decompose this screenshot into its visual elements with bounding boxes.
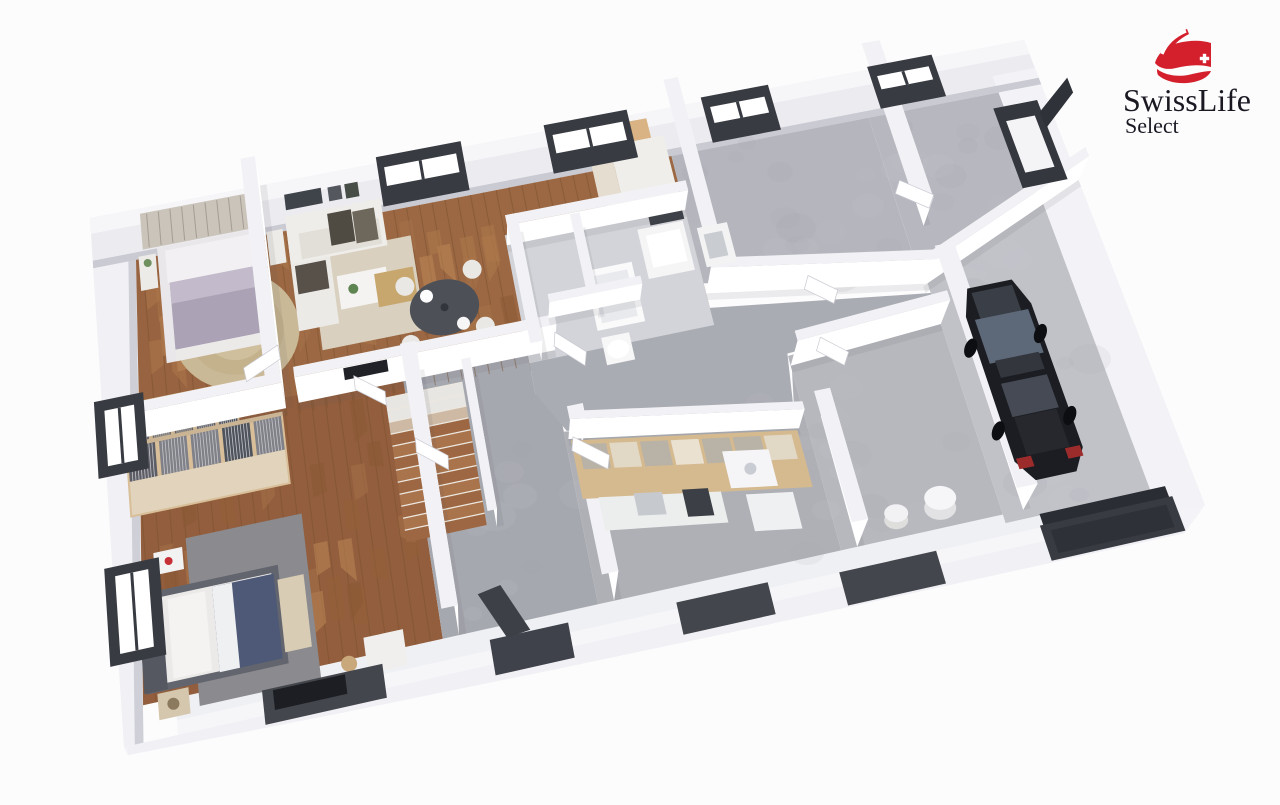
svg-text:Select: Select <box>1125 113 1179 138</box>
